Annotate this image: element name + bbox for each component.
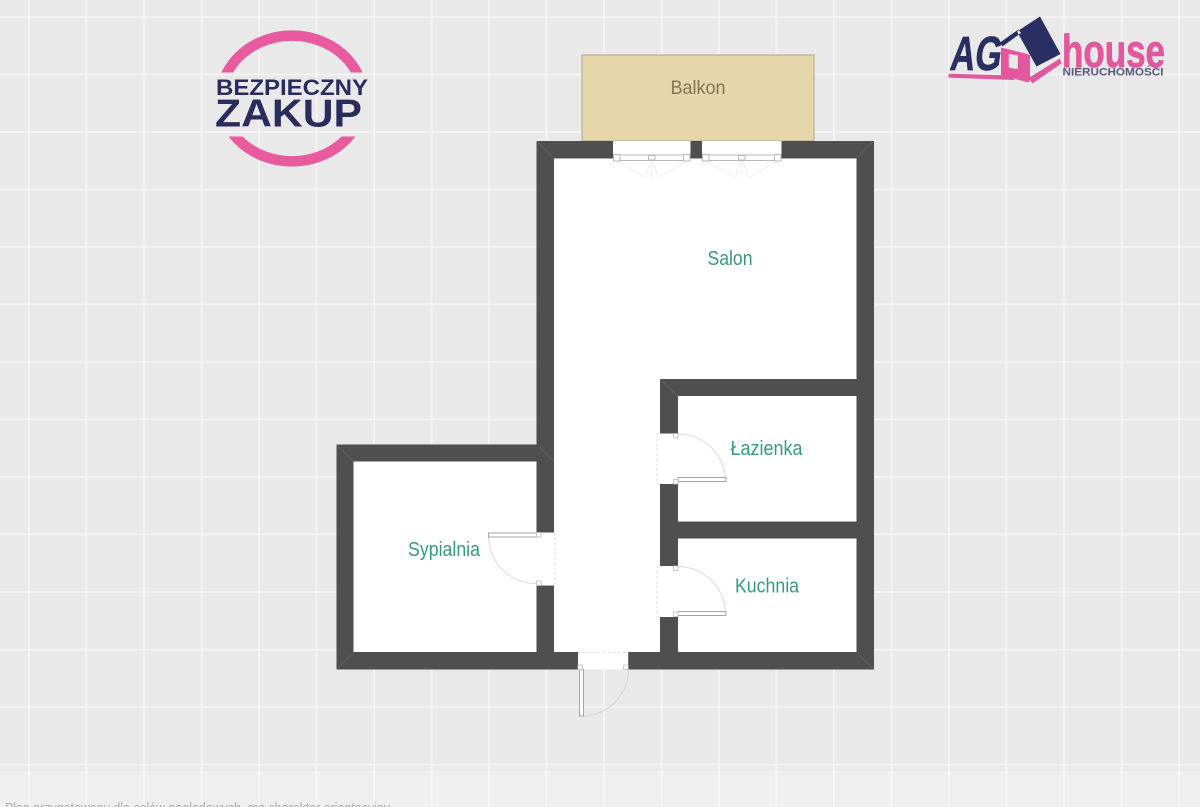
- svg-text:AG: AG: [947, 27, 1006, 81]
- svg-text:Sypialnia: Sypialnia: [408, 539, 481, 561]
- svg-text:Kuchnia: Kuchnia: [735, 576, 800, 598]
- svg-text:ZAKUP: ZAKUP: [215, 93, 362, 136]
- svg-text:NIERUCHOMOŚCI: NIERUCHOMOŚCI: [1063, 66, 1164, 79]
- svg-text:Balkon: Balkon: [671, 77, 726, 99]
- svg-text:Salon: Salon: [708, 248, 753, 270]
- svg-text:Łazienka: Łazienka: [731, 438, 804, 460]
- svg-text:Plan przygotowany dla celów po: Plan przygotowany dla celów poglądowych,…: [5, 800, 390, 807]
